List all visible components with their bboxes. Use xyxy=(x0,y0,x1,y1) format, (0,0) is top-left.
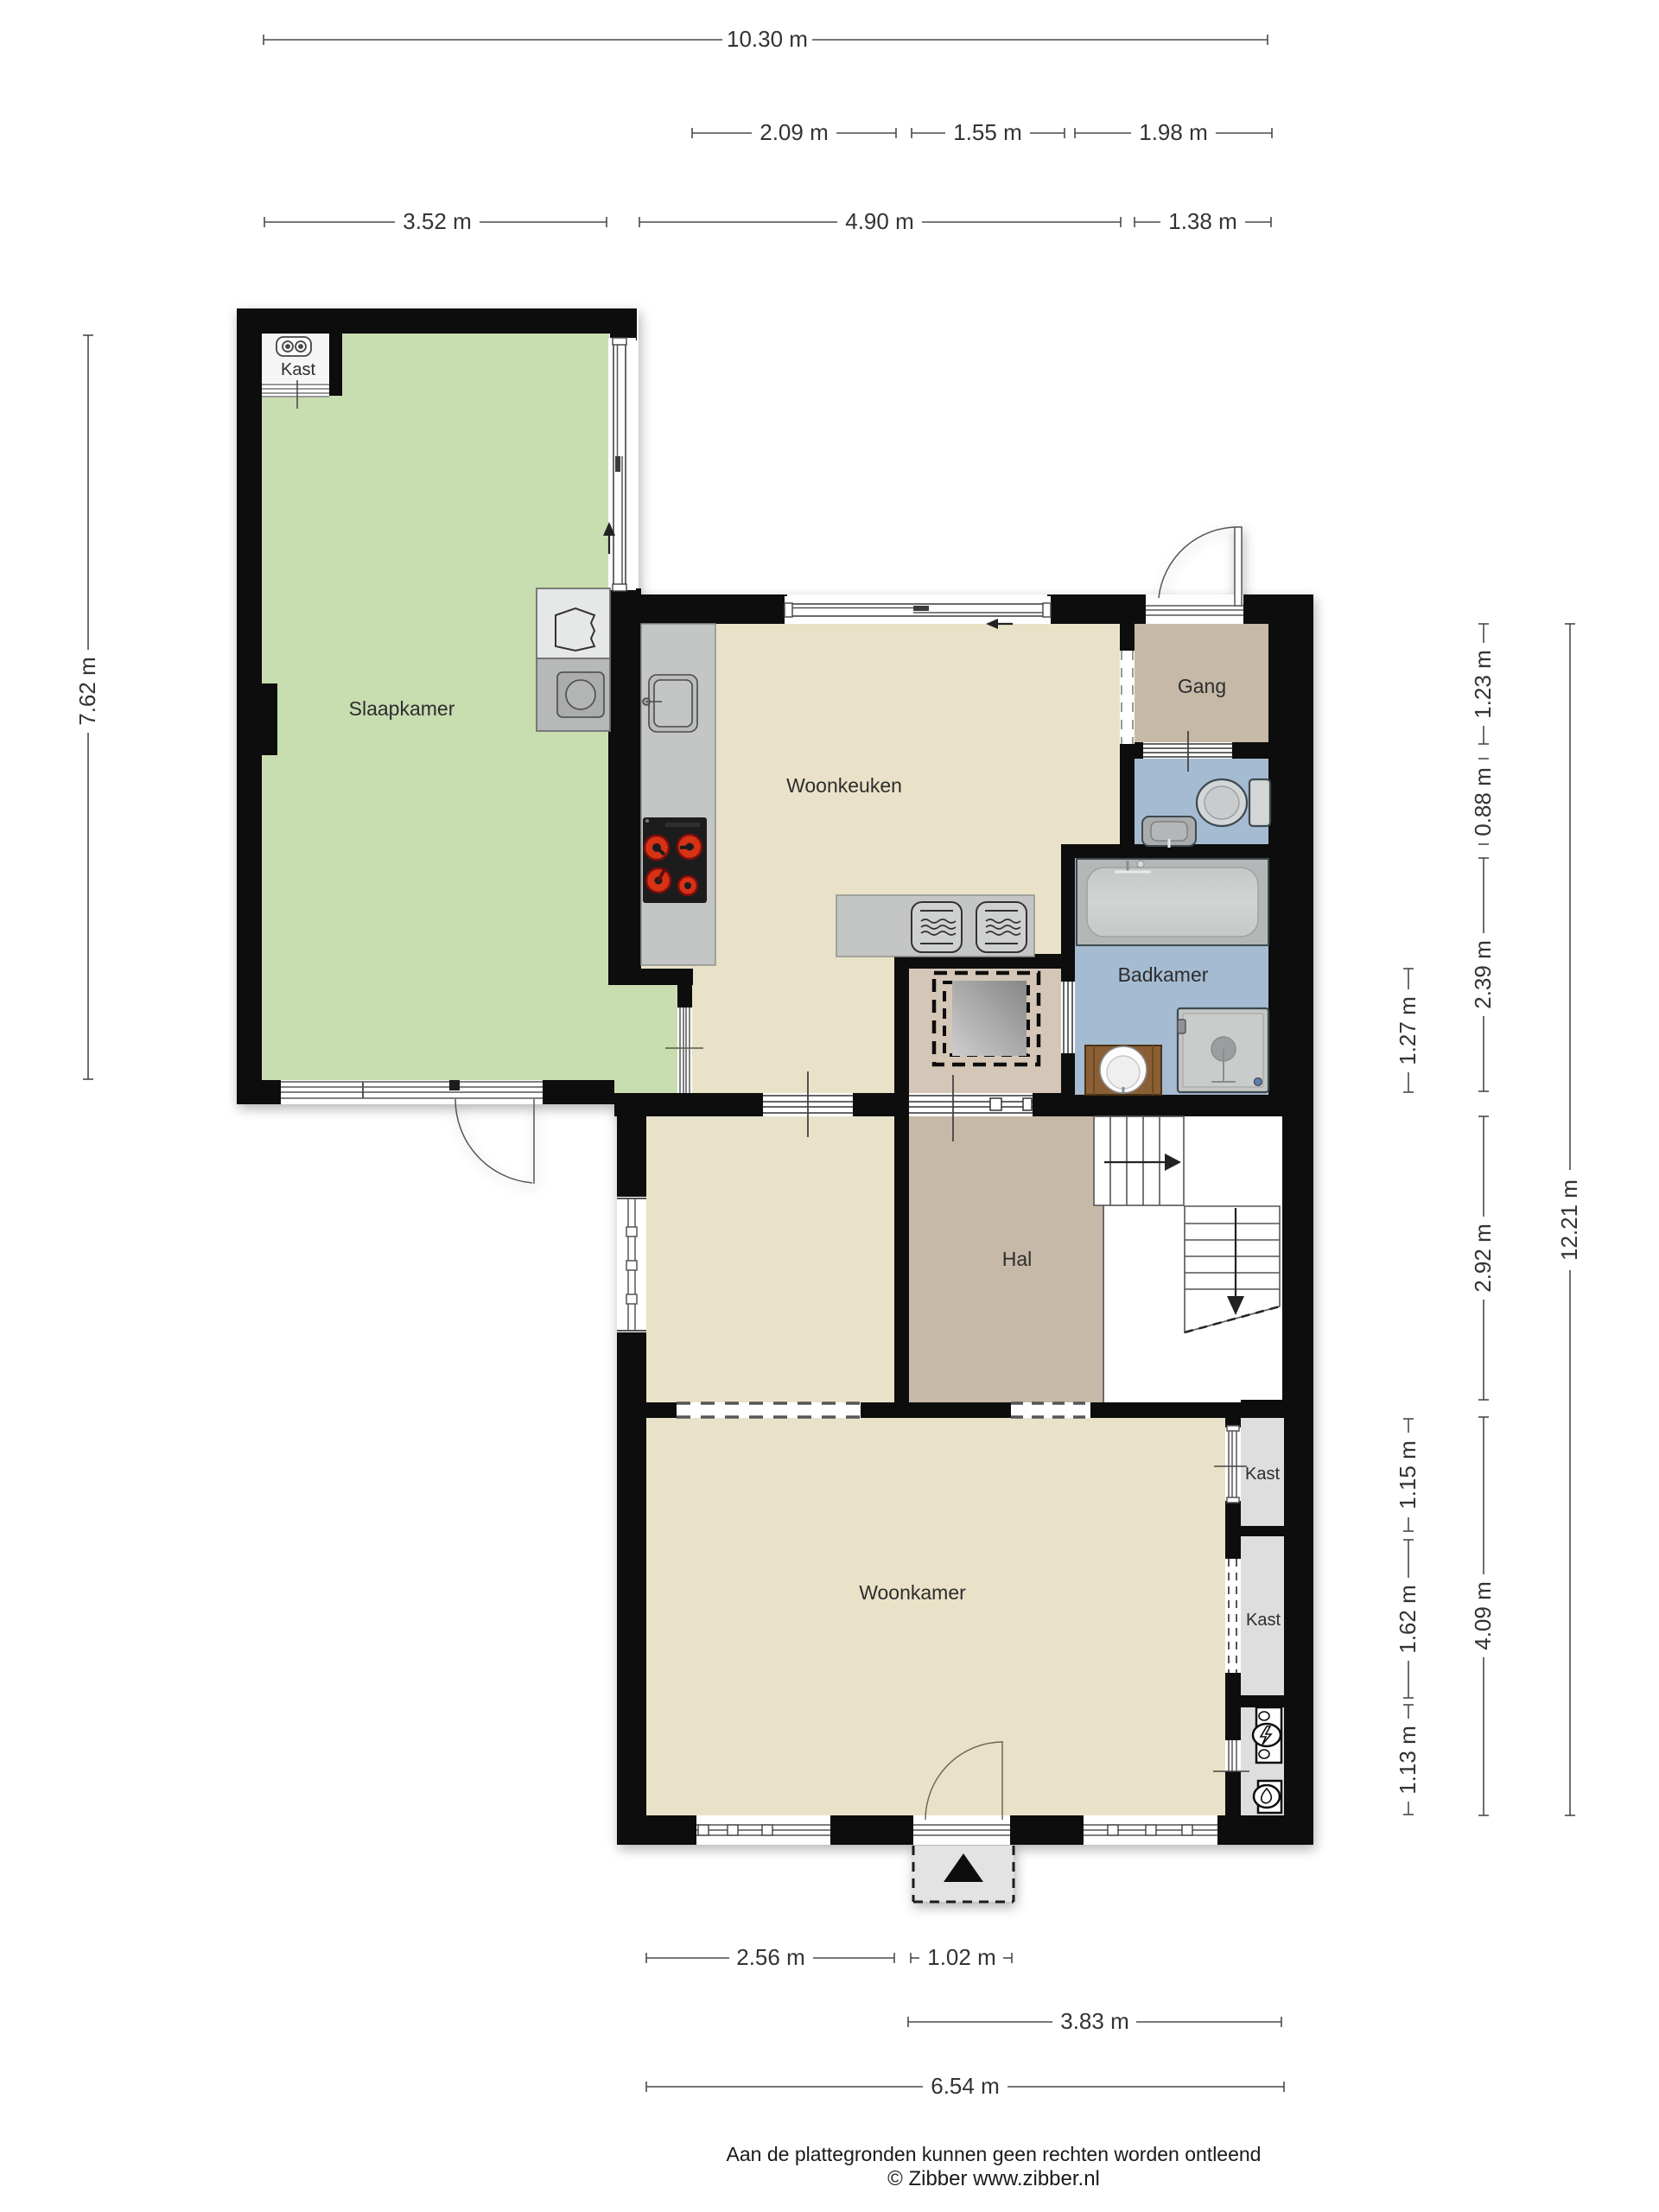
svg-text:Gang: Gang xyxy=(1178,675,1226,697)
svg-text:6.54 m: 6.54 m xyxy=(931,2073,1000,2099)
svg-text:10.30 m: 10.30 m xyxy=(727,26,808,52)
svg-text:2.92 m: 2.92 m xyxy=(1470,1224,1496,1293)
svg-text:1.55 m: 1.55 m xyxy=(953,119,1022,145)
svg-text:1.13 m: 1.13 m xyxy=(1395,1726,1421,1795)
svg-text:1.23 m: 1.23 m xyxy=(1470,650,1496,719)
svg-text:1.62 m: 1.62 m xyxy=(1395,1585,1421,1654)
svg-text:1.38 m: 1.38 m xyxy=(1168,208,1237,234)
svg-text:4.90 m: 4.90 m xyxy=(845,208,914,234)
svg-text:7.62 m: 7.62 m xyxy=(74,657,100,726)
svg-text:Woonkamer: Woonkamer xyxy=(859,1581,966,1604)
svg-text:0.88 m: 0.88 m xyxy=(1470,767,1496,836)
svg-text:3.52 m: 3.52 m xyxy=(403,208,472,234)
svg-text:2.09 m: 2.09 m xyxy=(760,119,829,145)
svg-text:Kast: Kast xyxy=(281,360,315,379)
svg-text:© Zibber www.zibber.nl: © Zibber www.zibber.nl xyxy=(887,2167,1100,2190)
svg-text:2.56 m: 2.56 m xyxy=(736,1944,805,1970)
svg-text:1.15 m: 1.15 m xyxy=(1395,1440,1421,1510)
svg-text:12.21 m: 12.21 m xyxy=(1556,1179,1582,1261)
svg-text:Badkamer: Badkamer xyxy=(1118,963,1209,986)
svg-text:Hal: Hal xyxy=(1002,1248,1033,1270)
svg-text:1.98 m: 1.98 m xyxy=(1139,119,1208,145)
svg-text:Slaapkamer: Slaapkamer xyxy=(349,697,455,720)
svg-text:Kast: Kast xyxy=(1246,1611,1281,1630)
svg-text:Kast: Kast xyxy=(1245,1465,1280,1484)
svg-text:1.27 m: 1.27 m xyxy=(1395,996,1421,1065)
svg-text:Woonkeuken: Woonkeuken xyxy=(786,774,902,797)
svg-text:3.83 m: 3.83 m xyxy=(1060,2008,1129,2034)
svg-text:1.02 m: 1.02 m xyxy=(927,1944,996,1970)
svg-text:Aan de plattegronden kunnen ge: Aan de plattegronden kunnen geen rechten… xyxy=(727,2143,1262,2165)
svg-text:4.09 m: 4.09 m xyxy=(1470,1581,1496,1650)
svg-text:2.39 m: 2.39 m xyxy=(1470,940,1496,1009)
